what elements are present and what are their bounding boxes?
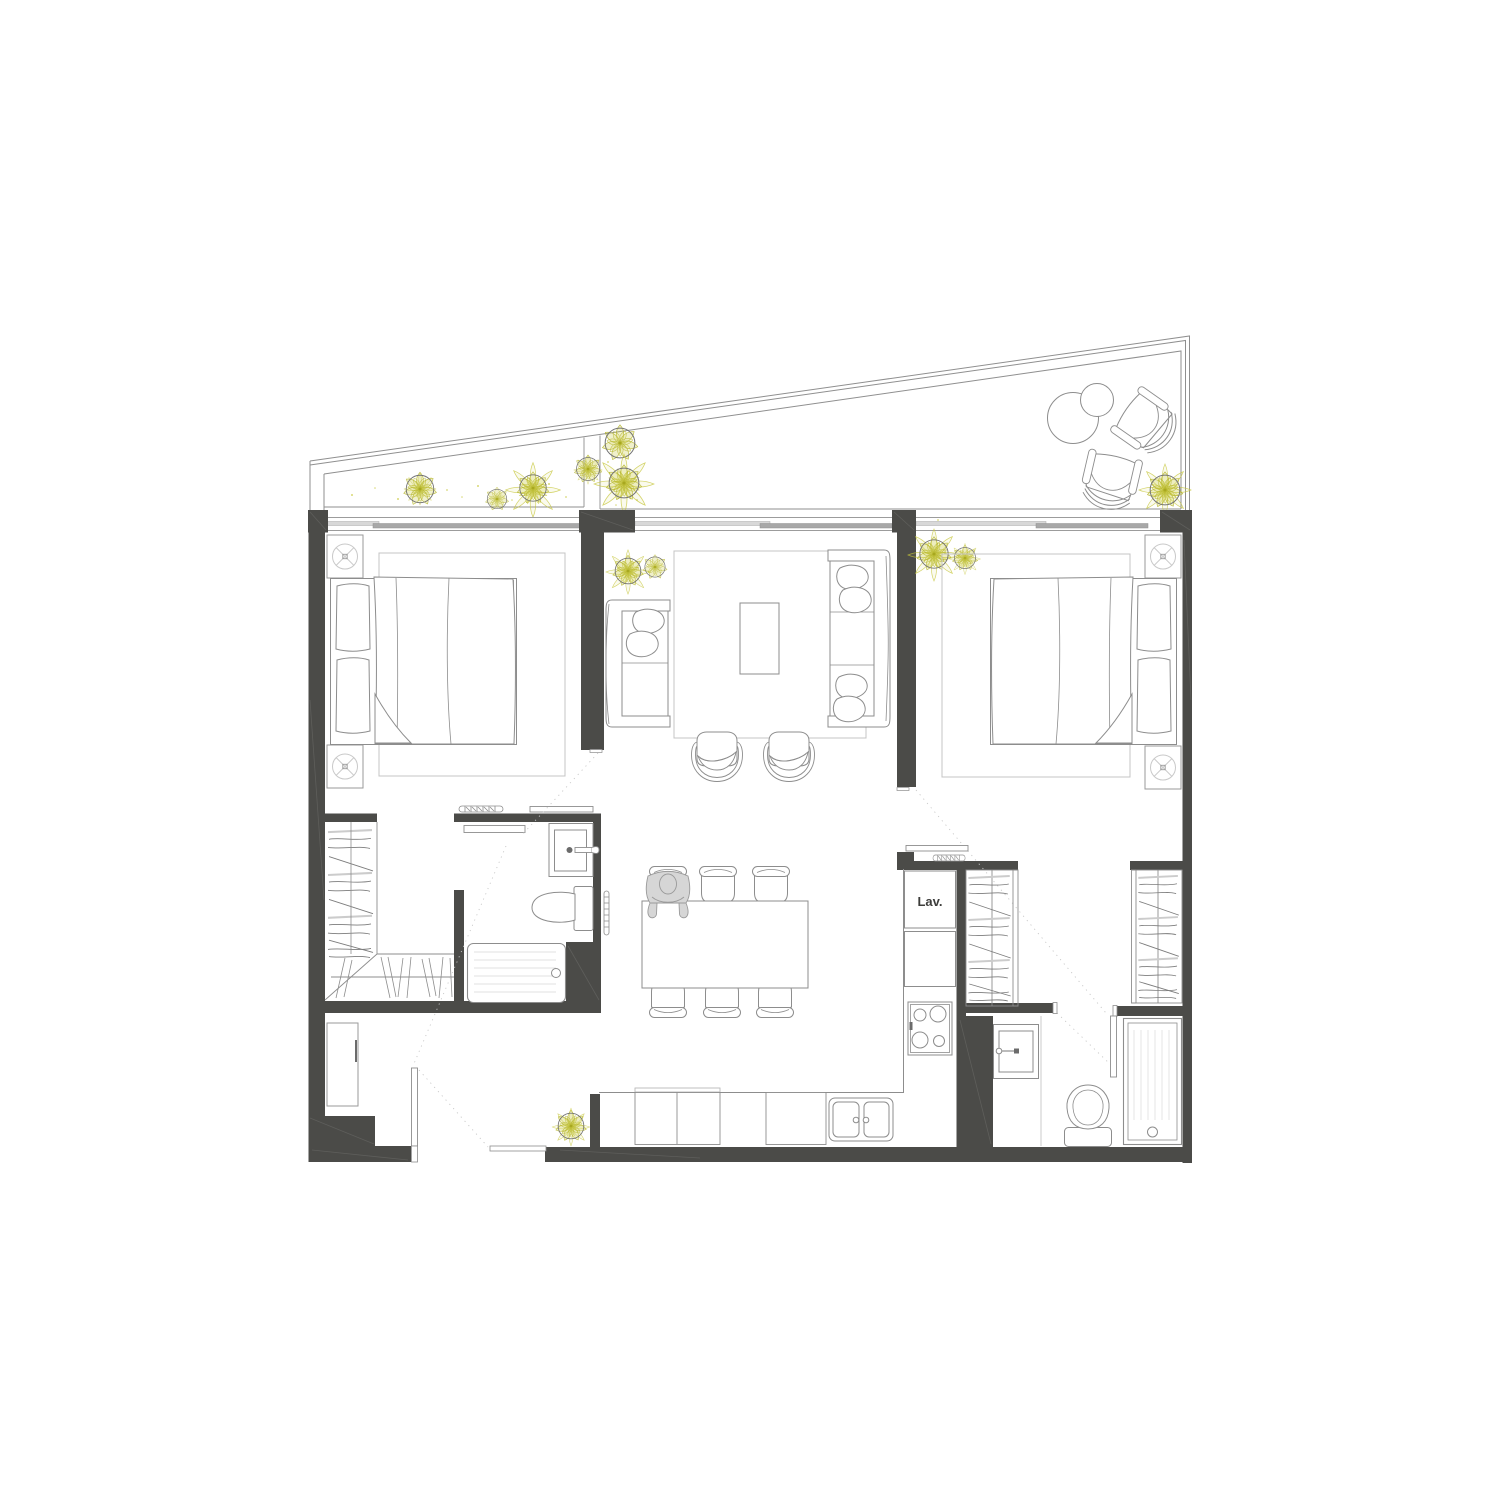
svg-text:Lav.: Lav.: [917, 894, 942, 909]
